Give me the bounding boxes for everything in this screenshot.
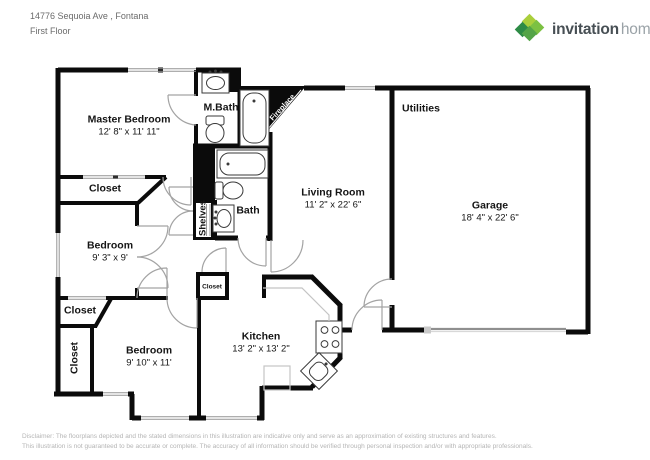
- label-closet-master: Closet: [89, 183, 121, 195]
- label-garage: Garage 18' 4" x 22' 6": [461, 201, 518, 224]
- label-shelves: Shelves: [197, 200, 209, 236]
- mbath-bathtub: [240, 90, 269, 146]
- mbath-toilet: [206, 116, 224, 143]
- floorplan-page: 14776 Sequoia Ave , Fontana First Floor …: [0, 0, 650, 460]
- bath-bathtub: [217, 150, 268, 178]
- label-bath: Bath: [236, 205, 259, 217]
- label-closet-kitchen: Closet: [202, 281, 222, 293]
- fireplace: Fireplace: [265, 86, 306, 134]
- label-master-bedroom: Master Bedroom 12' 8" x 11' 11": [88, 115, 171, 138]
- label-mbath: M.Bath: [204, 102, 239, 114]
- bath-toilet: [215, 182, 243, 199]
- garage-door-line: [424, 327, 566, 334]
- bath-sink: [213, 205, 234, 232]
- label-closet-hall: Closet: [64, 305, 96, 317]
- label-utilities: Utilities: [402, 103, 440, 115]
- kitchen-sink: [301, 353, 338, 390]
- mbath-sink: [202, 70, 229, 93]
- label-bedroom-2: Bedroom 9' 10" x 11': [126, 346, 172, 369]
- label-bedroom-1: Bedroom 9' 3" x 9': [87, 241, 133, 264]
- stove: [316, 321, 342, 353]
- label-kitchen: Kitchen 13' 2" x 13' 2": [232, 332, 289, 355]
- disclaimer-line-2: This illustration is not guaranteed to b…: [22, 442, 533, 452]
- floorplan-drawing: Fireplace: [0, 0, 650, 460]
- disclaimer: Disclaimer: The floorplans depicted and …: [22, 432, 533, 452]
- label-living-room: Living Room 11' 2" x 22' 6": [301, 188, 365, 211]
- disclaimer-line-1: Disclaimer: The floorplans depicted and …: [22, 432, 533, 442]
- label-closet-bedroom-2: Closet: [69, 342, 81, 374]
